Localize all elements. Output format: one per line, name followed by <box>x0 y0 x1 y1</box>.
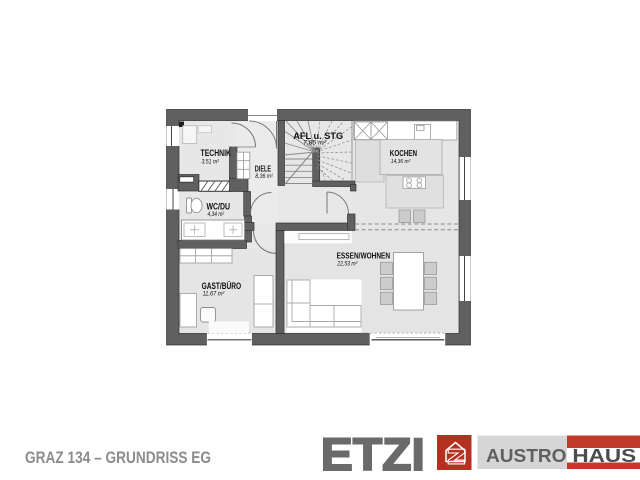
svg-text:GRAZ 134 – GRUNDRISS EG: GRAZ 134 – GRUNDRISS EG <box>25 449 211 467</box>
svg-text:HAUS: HAUS <box>572 445 636 466</box>
svg-text:22,53 m²: 22,53 m² <box>336 262 358 268</box>
svg-text:4,34 m²: 4,34 m² <box>208 211 225 218</box>
svg-text:7,85 m²: 7,85 m² <box>303 140 327 147</box>
svg-text:AUSTRO: AUSTRO <box>486 445 567 466</box>
svg-text:ETZI: ETZI <box>321 429 425 480</box>
svg-text:WC/DU: WC/DU <box>207 201 231 211</box>
svg-text:TECHNIK: TECHNIK <box>201 148 232 158</box>
svg-text:11,67 m²: 11,67 m² <box>203 292 226 298</box>
svg-text:3,51 m²: 3,51 m² <box>202 159 220 166</box>
svg-text:ESSEN/WOHNEN: ESSEN/WOHNEN <box>337 251 391 261</box>
svg-text:GAST/BÜRO: GAST/BÜRO <box>202 281 242 291</box>
svg-text:KOCHEN: KOCHEN <box>390 148 417 158</box>
svg-text:8,36 m²: 8,36 m² <box>255 173 273 180</box>
svg-text:14,36 m²: 14,36 m² <box>391 159 411 165</box>
